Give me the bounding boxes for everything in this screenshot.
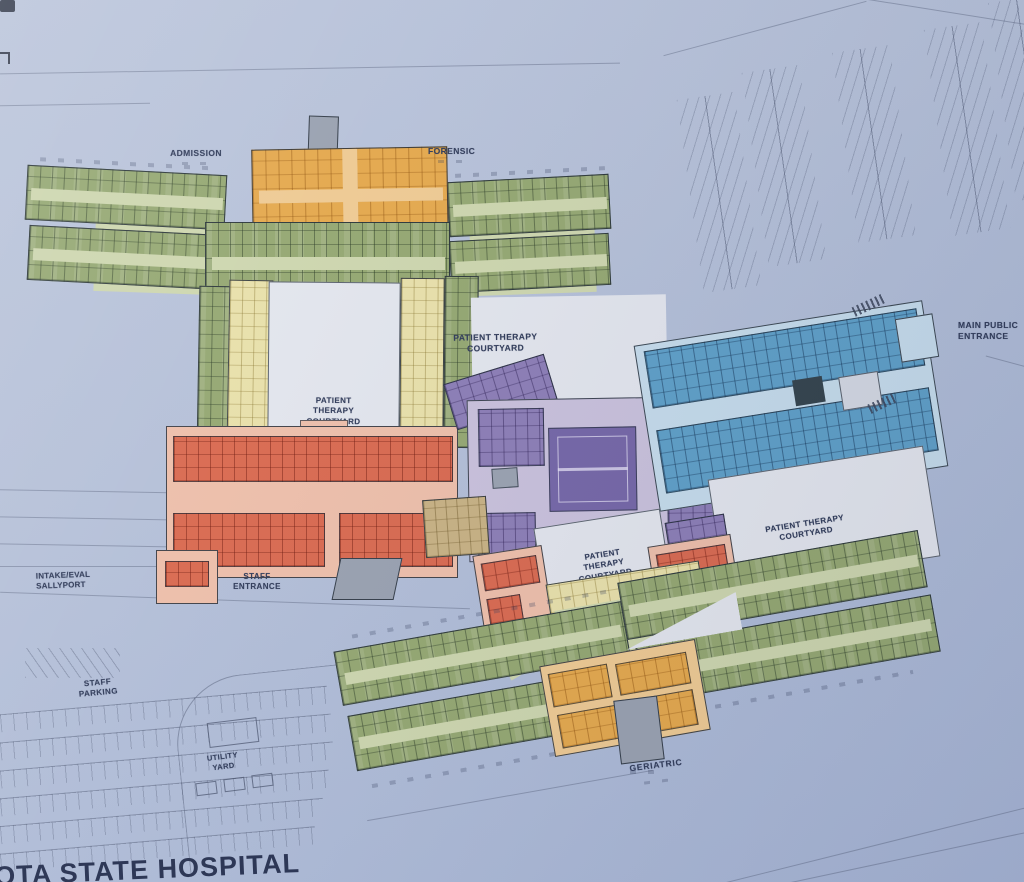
floor-plan-photo: PATIENT THERAPY COURTYARD PATIENT THERAP… xyxy=(0,0,1024,882)
photo-artifact xyxy=(0,52,10,64)
service-room xyxy=(491,467,518,489)
room-band xyxy=(548,664,613,708)
room-band xyxy=(481,555,541,591)
corridor xyxy=(453,197,607,217)
corridor xyxy=(31,188,223,210)
room-band xyxy=(615,652,691,696)
main-public-entrance-label: MAIN PUBLIC ENTRANCE xyxy=(958,320,1024,342)
corridor xyxy=(212,257,445,270)
road-line xyxy=(0,63,620,75)
forensic-label: FORENSIC xyxy=(428,146,472,157)
basketball-court xyxy=(557,435,628,502)
road-line xyxy=(0,103,150,107)
staff-entrance-label: STAFF ENTRANCE xyxy=(225,572,289,593)
ward-wing-upper-right xyxy=(447,174,612,237)
parking-hatch xyxy=(25,648,120,678)
ward-column-left-inner xyxy=(227,280,274,446)
gymnasium xyxy=(548,426,637,512)
utility-yard-structure xyxy=(251,773,273,788)
corridor xyxy=(33,248,220,270)
sallyport-stub xyxy=(156,550,218,604)
intake-sallyport-label: INTAKE/EVAL SALLYPORT xyxy=(36,568,132,592)
sub-label-ticks xyxy=(438,160,464,163)
utility-yard-structure xyxy=(223,777,245,792)
corridor xyxy=(455,254,607,274)
ward-wing-upper-left xyxy=(25,165,228,230)
support-rooms-tan xyxy=(422,496,490,558)
ward-wing-lower-left xyxy=(27,225,225,290)
road-line xyxy=(663,1,866,56)
sub-label-ticks xyxy=(644,778,670,784)
ward-column-right-inner xyxy=(399,278,444,445)
utility-yard-structure xyxy=(195,781,217,796)
road-line xyxy=(738,831,1024,882)
staff-entrance-walkway xyxy=(332,558,403,600)
road-line xyxy=(0,566,160,567)
photo-artifact xyxy=(0,0,15,12)
room xyxy=(165,561,209,587)
courtyard-label: PATIENT THERAPY COURTYARD xyxy=(448,331,543,355)
room-band xyxy=(478,408,545,467)
courtyard-top: PATIENT THERAPY COURTYARD xyxy=(267,281,400,442)
main-entrance-stem xyxy=(895,313,939,362)
road-line xyxy=(0,592,470,609)
parking-column xyxy=(832,45,916,243)
admission-label: ADMISSION xyxy=(168,148,224,159)
courtyard-label: PATIENT THERAPY COURTYARD xyxy=(765,513,847,546)
geriatric-entry-stem xyxy=(613,696,664,765)
sub-label-ticks xyxy=(182,162,210,165)
entrance-drive-line xyxy=(986,356,1024,370)
road-line xyxy=(545,805,1024,882)
room-band xyxy=(173,436,453,482)
dark-room xyxy=(792,376,826,406)
staff-parking-label: STAFF PARKING xyxy=(67,675,129,701)
